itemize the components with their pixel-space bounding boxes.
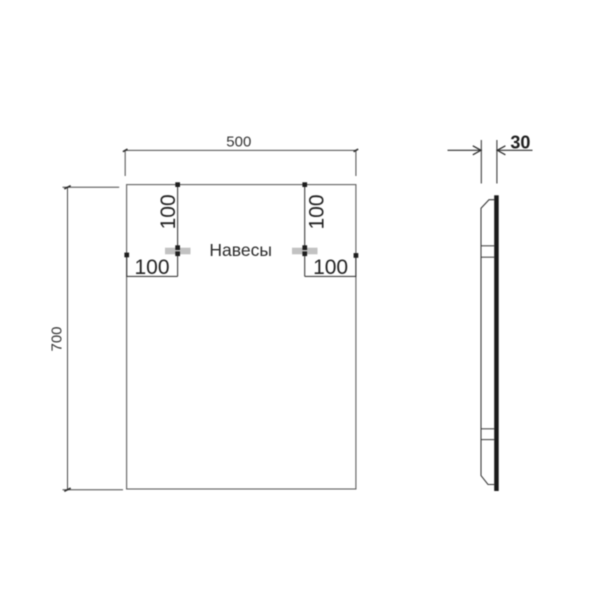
svg-text:100: 100	[313, 256, 348, 279]
svg-text:100: 100	[134, 256, 169, 279]
svg-text:100: 100	[306, 194, 329, 229]
svg-text:30: 30	[510, 133, 530, 153]
svg-text:100: 100	[157, 194, 180, 229]
svg-text:700: 700	[48, 326, 65, 351]
svg-text:500: 500	[226, 133, 251, 150]
svg-text:Навесы: Навесы	[209, 240, 272, 260]
